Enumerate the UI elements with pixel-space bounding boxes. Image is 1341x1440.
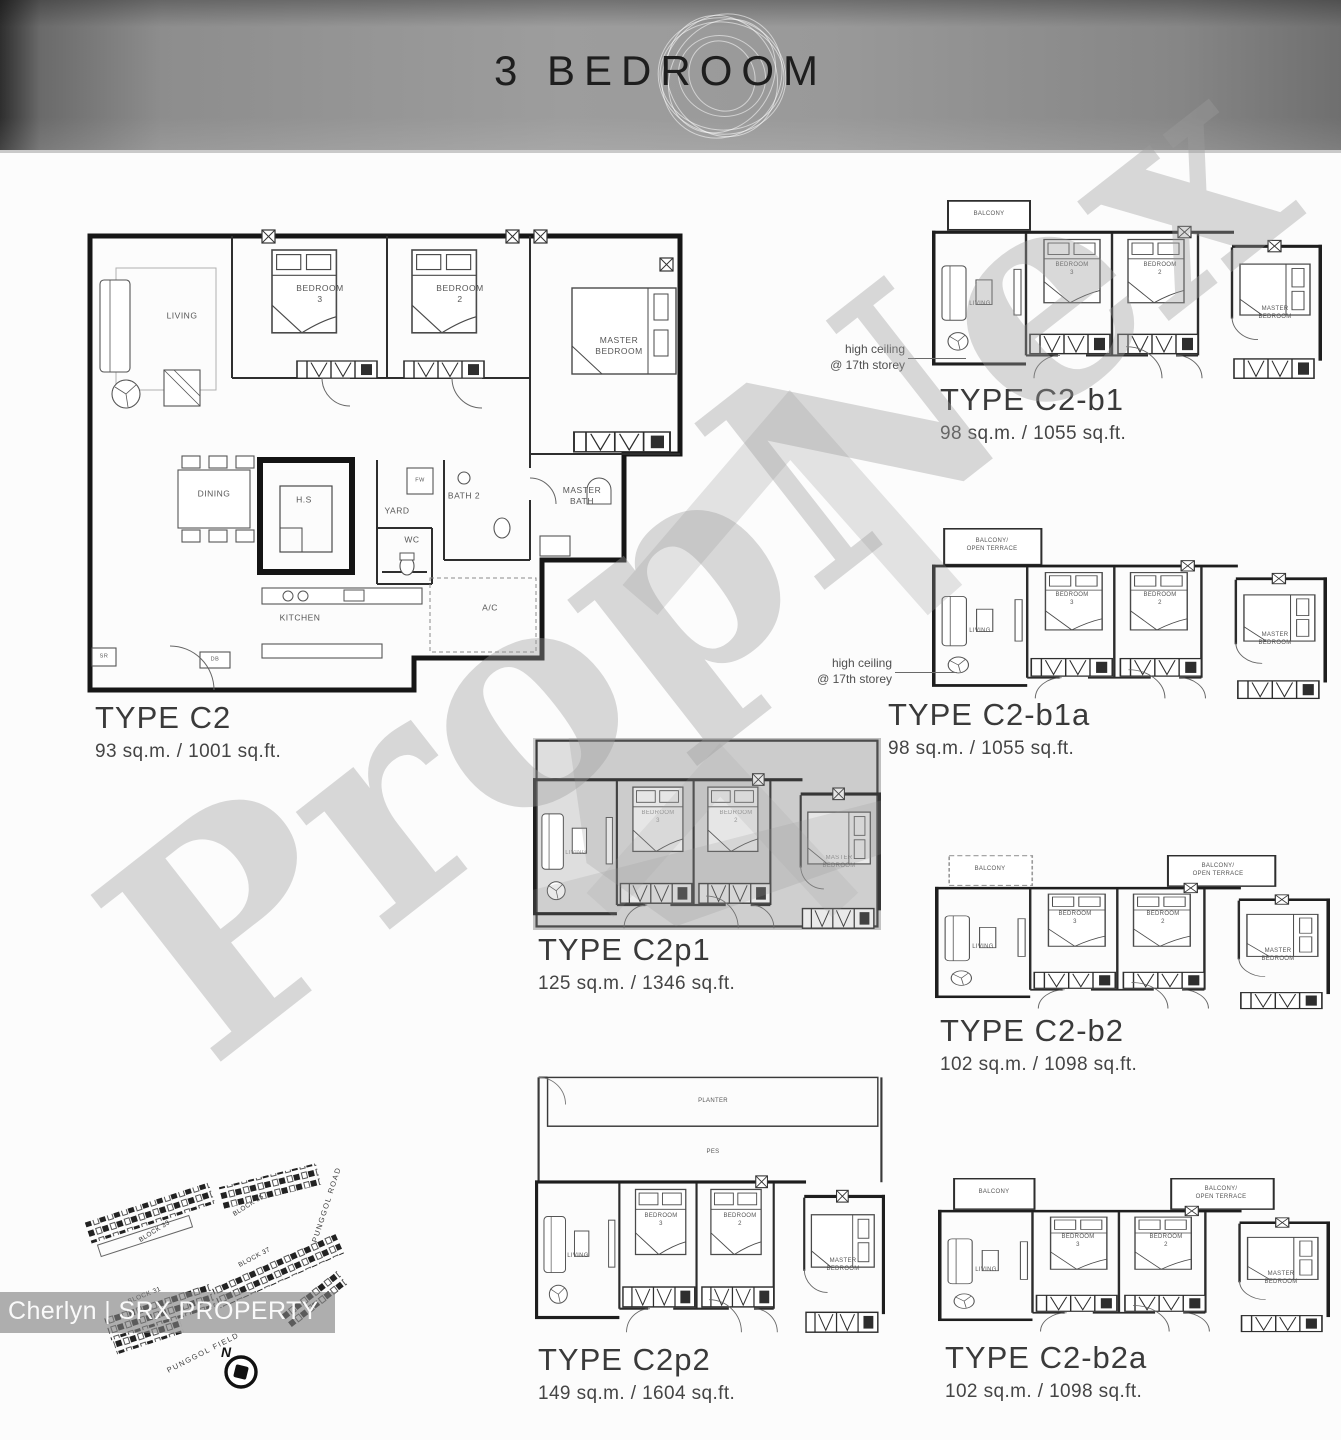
plan-area-text: 102 sq.m. / 1098 sq.ft. bbox=[940, 1054, 1137, 1076]
page-title: 3 BEDROOM bbox=[494, 47, 827, 95]
room-label-bedroom3: BEDROOM 3 bbox=[644, 1213, 677, 1229]
room-label-master: MASTER BEDROOM bbox=[1264, 1271, 1297, 1287]
plan-area-text: 98 sq.m. / 1055 sq.ft. bbox=[940, 423, 1126, 445]
plan-c2: LIVING BEDROOM 3 BEDROOM 2 MASTER BEDROO… bbox=[82, 228, 702, 703]
plan-type-title: TYPE C2-b1 bbox=[940, 382, 1126, 418]
plan-c2-b1a: BALCONY/ OPEN TERRACE LIVING BEDROOM 3 B… bbox=[932, 528, 1327, 700]
room-label-master: MASTER BEDROOM bbox=[1258, 632, 1291, 648]
room-label-master: MASTER BEDROOM bbox=[1261, 948, 1294, 964]
plan-area-text: 125 sq.m. / 1346 sq.ft. bbox=[538, 973, 735, 995]
high-ceiling-note-b1a: high ceiling @ 17th storey bbox=[792, 655, 892, 687]
plan-type-title: TYPE C2-b2 bbox=[940, 1013, 1137, 1049]
plan-type-title: TYPE C2 bbox=[95, 700, 281, 736]
plan-c2p2: PLANTER PES LIVING BEDROOM 3 BEDROOM 2 M… bbox=[535, 1072, 885, 1334]
room-label-balcony-terrace: BALCONY/ OPEN TERRACE bbox=[967, 538, 1018, 554]
plan-area-text: 93 sq.m. / 1001 sq.ft. bbox=[95, 741, 281, 763]
room-label-balcony-terrace: BALCONY/ OPEN TERRACE bbox=[1196, 1186, 1247, 1202]
note-leader-line bbox=[895, 672, 957, 673]
plan-c2-b1-drawing bbox=[932, 200, 1322, 380]
room-label-bedroom2: BEDROOM 2 bbox=[1149, 1234, 1182, 1250]
plan-type-title: TYPE C2-b2a bbox=[945, 1340, 1147, 1376]
plan-c2p1-drawing bbox=[533, 738, 881, 930]
plan-c2p2-drawing bbox=[535, 1072, 885, 1334]
plan-type-title: TYPE C2p2 bbox=[538, 1342, 735, 1378]
north-indicator: N bbox=[221, 1344, 232, 1360]
room-label-balcony: BALCONY bbox=[974, 211, 1005, 219]
caption-c2-b2a: TYPE C2-b2a 102 sq.m. / 1098 sq.ft. bbox=[945, 1340, 1147, 1403]
room-label-ac: A/C bbox=[482, 602, 498, 613]
caption-c2-b2: TYPE C2-b2 102 sq.m. / 1098 sq.ft. bbox=[940, 1013, 1137, 1076]
room-label-living: LIVING bbox=[565, 850, 586, 858]
room-label-balcony: BALCONY bbox=[979, 1189, 1010, 1197]
room-label-sr: SR bbox=[100, 653, 109, 660]
room-label-pes: PES bbox=[707, 1149, 720, 1157]
room-label-master: MASTER BEDROOM bbox=[1258, 306, 1291, 322]
room-label-hs: H.S bbox=[296, 494, 312, 505]
room-label-master: MASTER BEDROOM bbox=[826, 1258, 859, 1274]
room-label-bedroom3: BEDROOM 3 bbox=[1055, 592, 1088, 608]
plan-c2-b1a-drawing bbox=[932, 528, 1327, 700]
header-band: 3 BEDROOM bbox=[0, 0, 1341, 153]
room-label-bedroom3: BEDROOM 3 bbox=[1061, 1234, 1094, 1250]
floorplan-page: 3 BEDROOM bbox=[0, 0, 1341, 1440]
room-label-dining: DINING bbox=[198, 488, 231, 499]
room-label-bedroom2: BEDROOM 2 bbox=[719, 810, 752, 826]
plan-c2-b2a-drawing bbox=[938, 1178, 1330, 1333]
room-label-bedroom2: BEDROOM 2 bbox=[1143, 262, 1176, 278]
room-label-yard: YARD bbox=[385, 505, 410, 516]
note-leader-line bbox=[908, 358, 966, 359]
plan-area-text: 98 sq.m. / 1055 sq.ft. bbox=[888, 738, 1090, 760]
room-label-bedroom3: BEDROOM 3 bbox=[1058, 911, 1091, 927]
room-label-bedroom2: BEDROOM 2 bbox=[1146, 911, 1179, 927]
room-label-master: MASTER BEDROOM bbox=[822, 855, 855, 871]
room-label-db: DB bbox=[211, 656, 220, 663]
agent-credit-badge: Cherlyn | SRX PROPERTY bbox=[0, 1292, 335, 1333]
room-label-living: LIVING bbox=[972, 944, 993, 952]
room-label-bedroom3: BEDROOM 3 bbox=[641, 810, 674, 826]
caption-c2-b1: TYPE C2-b1 98 sq.m. / 1055 sq.ft. bbox=[940, 382, 1126, 445]
room-label-bedroom3: BEDROOM 3 bbox=[296, 283, 343, 305]
caption-c2-b1a: TYPE C2-b1a 98 sq.m. / 1055 sq.ft. bbox=[888, 697, 1090, 760]
room-label-balcony-terrace: BALCONY/ OPEN TERRACE bbox=[1193, 863, 1244, 879]
plan-c2-b2-drawing bbox=[935, 855, 1330, 1010]
room-label-kitchen: KITCHEN bbox=[280, 612, 321, 623]
plan-type-title: TYPE C2-b1a bbox=[888, 697, 1090, 733]
room-label-bedroom2: BEDROOM 2 bbox=[723, 1213, 756, 1229]
plan-c2-drawing bbox=[82, 228, 702, 703]
plan-c2-b2a: BALCONY BALCONY/ OPEN TERRACE LIVING BED… bbox=[938, 1178, 1330, 1333]
room-label-master-bath: MASTER BATH bbox=[563, 485, 601, 507]
plan-area-text: 102 sq.m. / 1098 sq.ft. bbox=[945, 1381, 1147, 1403]
room-label-balcony: BALCONY bbox=[975, 866, 1006, 874]
plan-c2-b1: BALCONY LIVING BEDROOM 3 BEDROOM 2 MASTE… bbox=[932, 200, 1322, 380]
room-label-living: LIVING bbox=[975, 1267, 996, 1275]
plan-area-text: 149 sq.m. / 1604 sq.ft. bbox=[538, 1383, 735, 1405]
room-label-living: LIVING bbox=[567, 1253, 588, 1261]
room-label-planter: PLANTER bbox=[698, 1098, 728, 1106]
caption-c2p2: TYPE C2p2 149 sq.m. / 1604 sq.ft. bbox=[538, 1342, 735, 1405]
room-label-bedroom3: BEDROOM 3 bbox=[1055, 262, 1088, 278]
plan-type-title: TYPE C2p1 bbox=[538, 932, 735, 968]
room-label-fw: FW bbox=[415, 477, 425, 484]
room-label-living: LIVING bbox=[969, 301, 990, 309]
room-label-living: LIVING bbox=[969, 628, 990, 636]
caption-c2p1: TYPE C2p1 125 sq.m. / 1346 sq.ft. bbox=[538, 932, 735, 995]
room-label-bath2: BATH 2 bbox=[448, 490, 480, 501]
high-ceiling-note-b1: high ceiling @ 17th storey bbox=[805, 341, 905, 373]
room-label-wc: WC bbox=[404, 534, 419, 545]
plan-c2-b2: BALCONY BALCONY/ OPEN TERRACE LIVING BED… bbox=[935, 855, 1330, 1010]
room-label-living: LIVING bbox=[167, 310, 198, 321]
room-label-bedroom2: BEDROOM 2 bbox=[436, 283, 483, 305]
room-label-master: MASTER BEDROOM bbox=[595, 335, 642, 357]
plan-c2p1: LIVING BEDROOM 3 BEDROOM 2 MASTER BEDROO… bbox=[533, 738, 881, 930]
room-label-bedroom2: BEDROOM 2 bbox=[1143, 592, 1176, 608]
caption-c2: TYPE C2 93 sq.m. / 1001 sq.ft. bbox=[95, 700, 281, 763]
